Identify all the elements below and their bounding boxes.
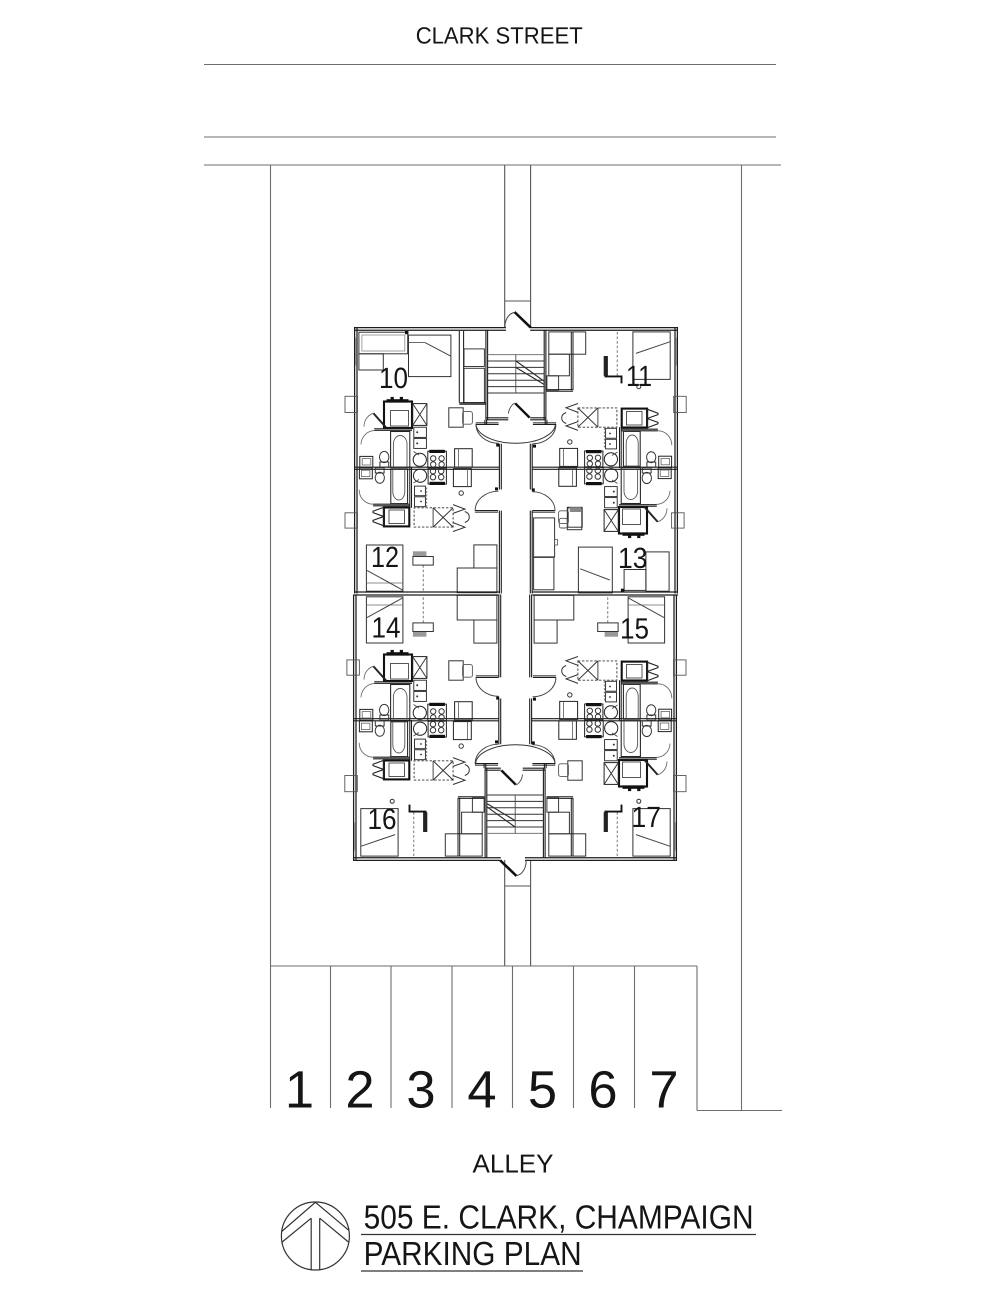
svg-text:7: 7 (649, 1061, 678, 1120)
svg-text:ALLEY: ALLEY (473, 1149, 554, 1179)
svg-text:505 E. CLARK, CHAMPAIGN: 505 E. CLARK, CHAMPAIGN (364, 1200, 754, 1237)
svg-text:CLARK STREET: CLARK STREET (416, 23, 583, 49)
svg-text:14: 14 (372, 612, 401, 645)
svg-text:1: 1 (285, 1061, 314, 1120)
svg-text:16: 16 (368, 803, 397, 836)
svg-text:2: 2 (345, 1061, 374, 1120)
svg-text:17: 17 (632, 801, 662, 834)
svg-text:PARKING PLAN: PARKING PLAN (364, 1236, 582, 1273)
svg-text:13: 13 (618, 542, 648, 575)
svg-text:4: 4 (467, 1061, 496, 1120)
svg-text:12: 12 (371, 541, 399, 574)
svg-text:5: 5 (528, 1061, 557, 1120)
svg-text:11: 11 (626, 360, 652, 393)
svg-text:15: 15 (620, 613, 649, 646)
svg-text:6: 6 (588, 1061, 617, 1120)
svg-text:3: 3 (406, 1061, 435, 1120)
svg-text:10: 10 (379, 362, 408, 395)
